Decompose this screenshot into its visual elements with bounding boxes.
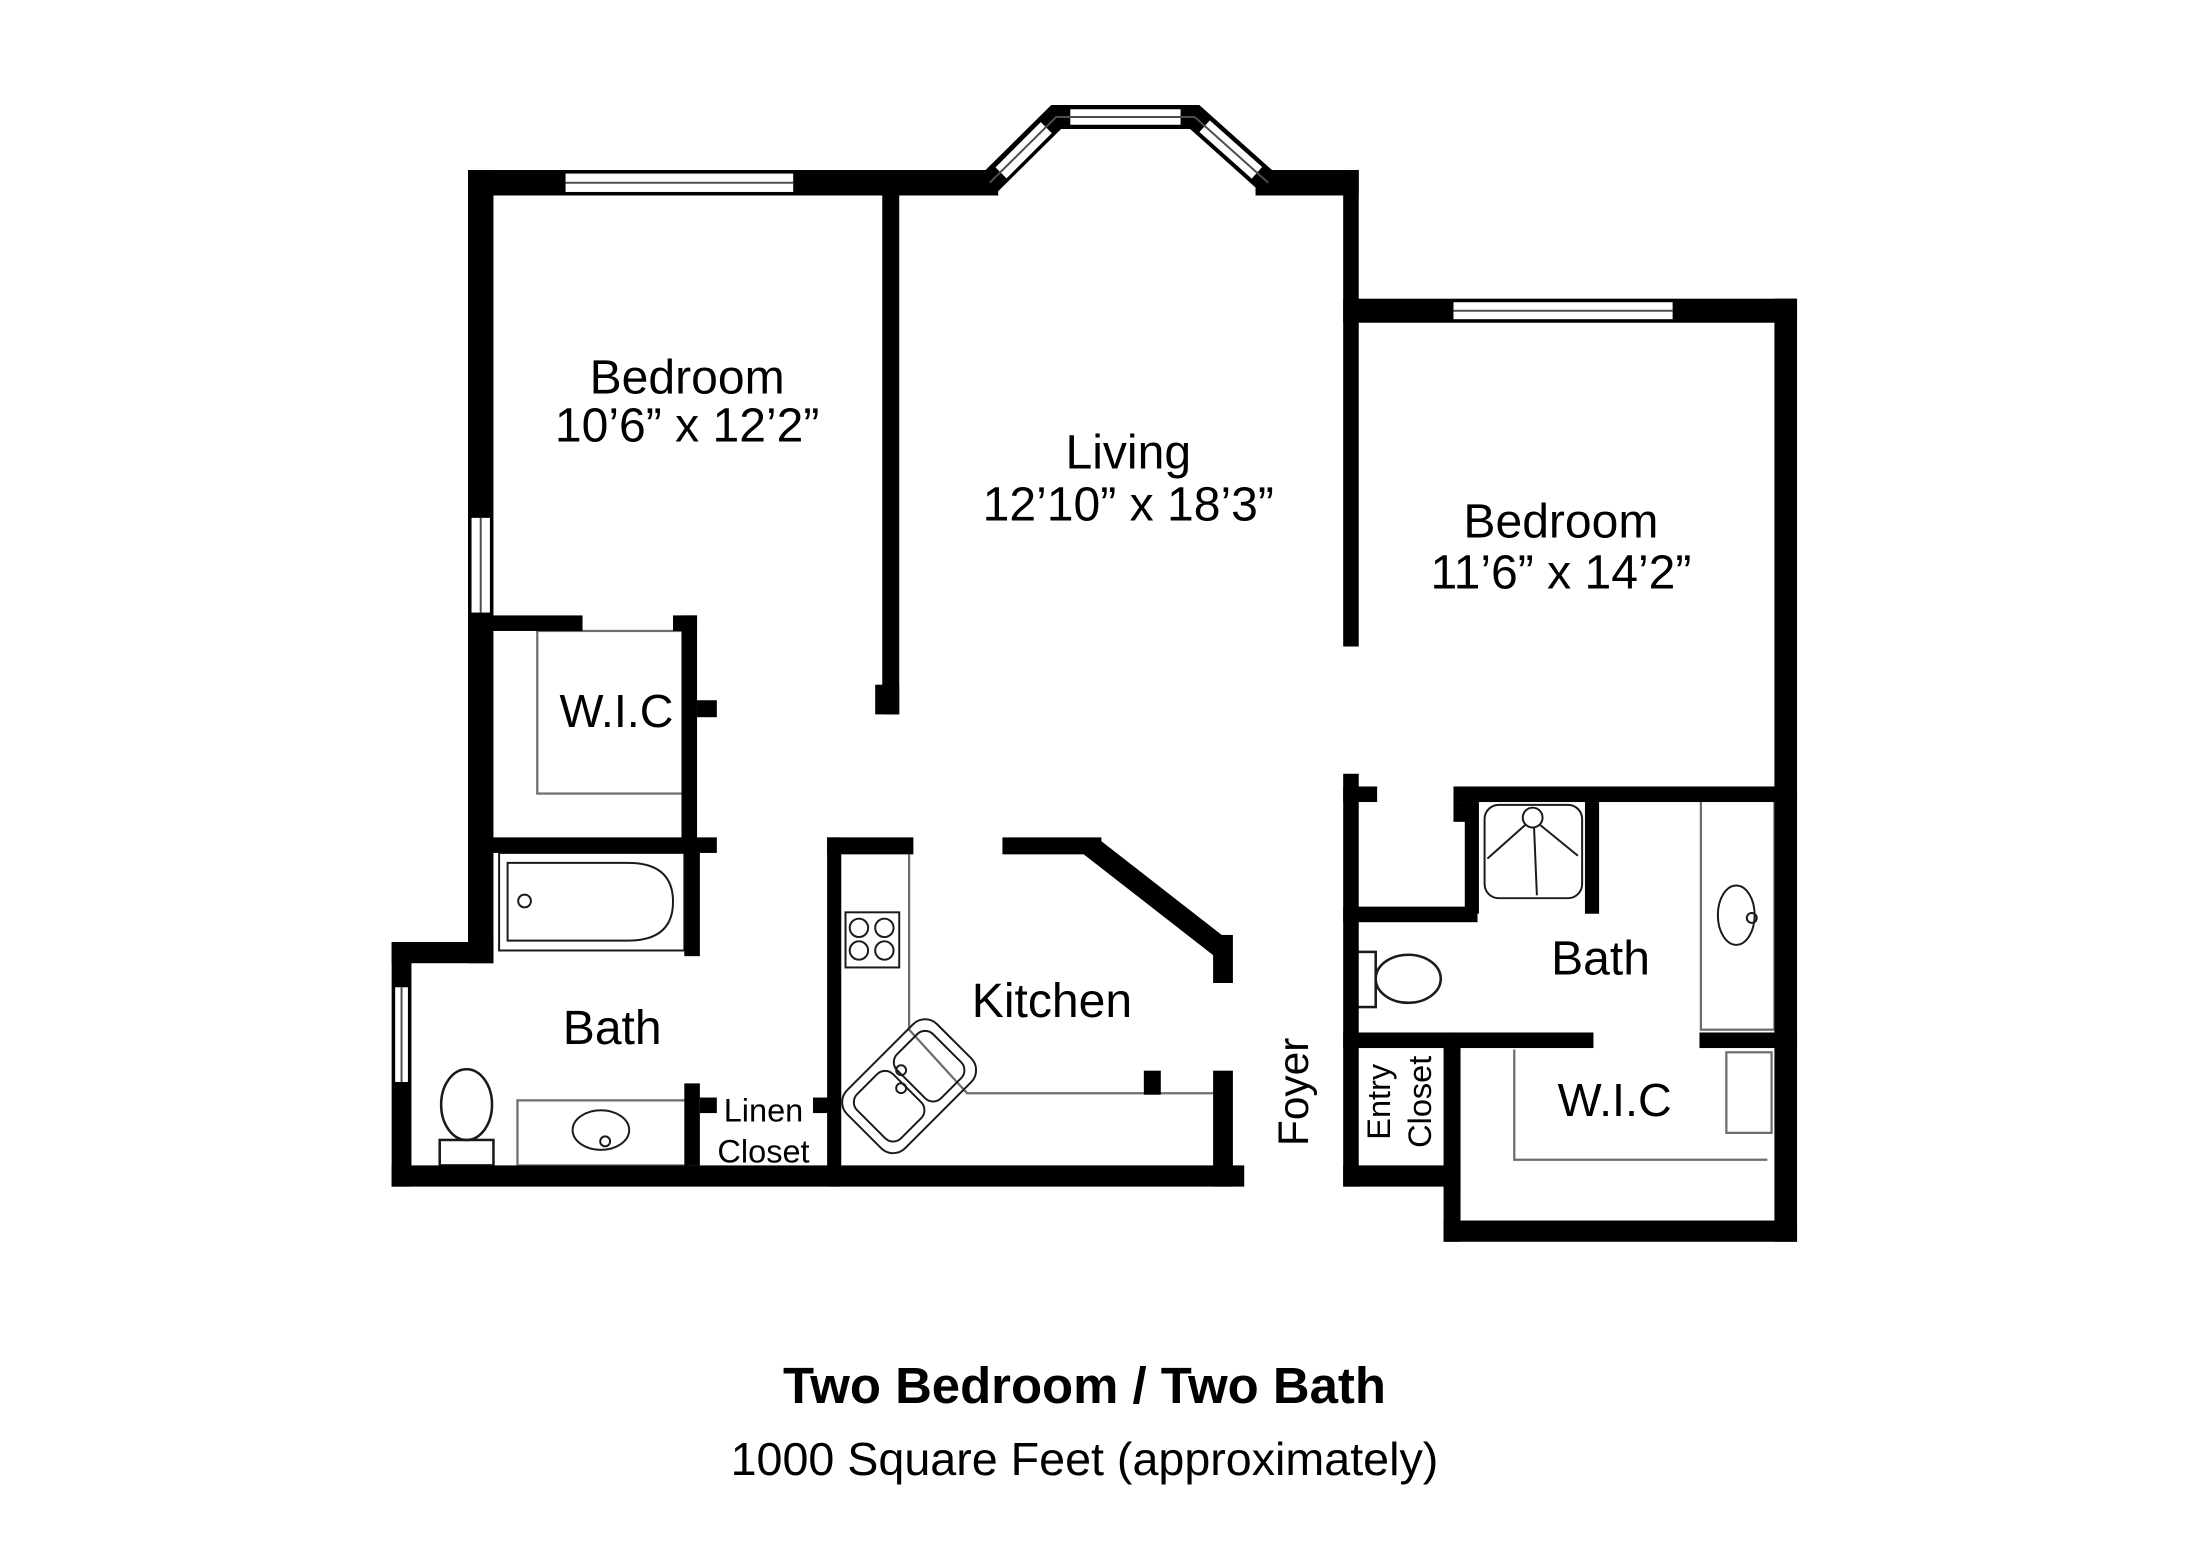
window-bath1-left [395,987,408,1082]
wall-a-upper [1343,170,1359,646]
wall-entry-closet-bottom [1343,1165,1460,1186]
window-bedroom1-top [566,174,794,192]
plan-title-line2: 1000 Square Feet (approximately) [731,1433,1439,1485]
toilet-icon-right [1356,952,1441,1007]
windows [395,174,1672,1082]
floor-plan-svg: Bedroom 10’6” x 12’2” Living 12’10” x 18… [0,0,2200,1556]
wall-toilet-nook [1343,907,1477,923]
plan-title-line1: Two Bedroom / Two Bath [783,1357,1386,1414]
wall-wic1-tab [697,700,717,717]
wall-divider-foot [875,685,899,715]
wall-a-lower [1343,774,1359,1187]
shower-icon [1485,805,1583,898]
bedroom1-dimensions: 10’6” x 12’2” [555,398,820,452]
wall-wic1-top [468,615,583,631]
bathroom-sink-right [1701,798,1775,1030]
floor-plan-image: Bedroom 10’6” x 12’2” Living 12’10” x 18… [0,0,2200,1556]
wall-kitchen-diagonal [1090,846,1224,951]
wall-right-outer [1774,299,1797,1242]
bath1-label: Bath [563,1001,662,1055]
wall-linen-tab-left [700,1098,717,1114]
wic1-label: W.I.C [559,685,673,737]
bedroom2-dimensions: 11’6” x 14’2” [1430,546,1691,600]
stove-icon [846,912,900,967]
living-dimensions: 12’10” x 18’3” [983,478,1274,532]
wall-kitchen-top-1 [827,837,913,854]
window-bedroom1-left [472,518,490,613]
wall-entry-closet-right [1444,1032,1461,1241]
wall-linen-left [684,1083,700,1165]
wall-bottom-left-section [392,1165,1245,1186]
toilet-icon-left [440,1069,494,1165]
bedroom1-name: Bedroom [590,350,785,404]
foyer-label: Foyer [1270,1038,1317,1146]
wic2-label: W.I.C [1558,1074,1672,1126]
entry-closet-label-line2: Closet [1402,1056,1438,1148]
wall-wic1-right [681,615,697,853]
plan-title: Two Bedroom / Two Bath 1000 Square Feet … [731,1357,1439,1485]
wall-foyer-lower [1213,1071,1233,1187]
entry-closet-label-line1: Entry [1361,1063,1397,1140]
linen-closet-label-line2: Closet [717,1134,809,1170]
wall-foyer-jamb-upper [1213,935,1233,983]
window-bedroom2-top [1453,302,1672,319]
kitchen-label: Kitchen [972,974,1132,1028]
living-name: Living [1065,425,1191,479]
wall-bedroom2-bottom-2 [1453,786,1797,802]
linen-closet-label-line1: Linen [724,1093,804,1129]
wall-shower-right [1585,802,1599,914]
bathroom-sink-left [517,1100,688,1165]
wall-bath2-bottom-2 [1699,1032,1797,1048]
wall-bedroom2-bottom-1 [1343,786,1377,802]
wall-tub-right [684,853,700,956]
bathtub-icon [499,853,684,951]
wall-counter-stub [1144,1071,1161,1095]
wall-kitchen-left [827,837,841,1186]
bedroom2-name: Bedroom [1463,495,1658,549]
wall-bath1-top [468,837,717,853]
bay-window [990,117,1269,183]
bath2-label: Bath [1551,932,1650,986]
wall-bath2-bottom-1 [1343,1032,1593,1048]
wall-divider-bedroom1-living [882,195,899,714]
wall-bottom-right-section [1444,1221,1797,1242]
wall-shower-left [1465,802,1479,914]
